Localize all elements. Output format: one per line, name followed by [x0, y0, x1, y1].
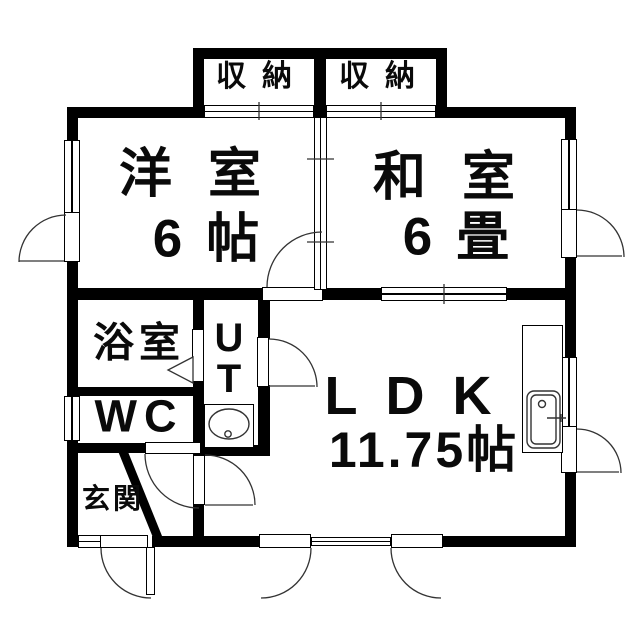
entrance-threshold	[100, 535, 148, 548]
door-ldk-right-arc	[577, 429, 621, 473]
door-bathroom-leaf	[192, 329, 204, 382]
door-japanese-right-leaf	[561, 209, 577, 258]
wall-ut-right-lower	[258, 385, 270, 456]
fusuma-partition	[314, 117, 327, 290]
ldk-double-door-right-leaf	[391, 534, 443, 548]
wall-right-middle	[565, 256, 576, 360]
entrance-label: 玄関	[82, 485, 144, 513]
door-ldk-right-leaf	[561, 426, 577, 473]
utility-label-line2: T	[217, 359, 241, 399]
wall-ut-right-upper	[258, 296, 270, 339]
ldk-double-door-left-arc	[261, 548, 311, 598]
floor-plan: 収納 収納 洋室 6帖 和室 6畳 浴室 U T WC 玄関 LDK 11.75…	[0, 0, 640, 640]
ldk-double-door-fixed	[311, 537, 391, 546]
wall-bath-ut-upper	[193, 296, 204, 332]
wall-closet-left	[193, 48, 204, 110]
closet-right-label: 収納	[339, 62, 431, 92]
door-entrance-arc	[101, 548, 151, 598]
wall-left-lower	[67, 438, 78, 547]
wall-bottom-c	[440, 536, 576, 547]
western-room-size: 6帖	[153, 213, 283, 266]
closet-left-label: 収納	[216, 62, 308, 92]
door-hall-ldk-leaf	[193, 455, 205, 505]
ldk-double-door-right-arc	[391, 548, 441, 598]
japanese-ldk-sliding-door	[381, 287, 507, 301]
utility-label-line1: U	[215, 318, 244, 358]
washbasin-unit	[204, 404, 254, 448]
wall-right-upper	[565, 107, 576, 142]
window-wc-left	[64, 396, 80, 441]
door-ut-arc	[269, 339, 317, 387]
wc-label: WC	[95, 394, 184, 439]
wall-left-middle	[67, 260, 78, 399]
japanese-room-name: 和室	[373, 151, 551, 204]
door-wc-leaf	[145, 442, 201, 454]
wall-bottom-b	[152, 536, 262, 547]
wall-top-left	[67, 107, 204, 118]
door-western-left-arc	[19, 215, 66, 262]
door-western-left-leaf	[64, 212, 80, 262]
wall-hall-ldk-lower	[193, 503, 204, 543]
closet-right-sliding-door	[326, 105, 436, 118]
door-wc-arc	[145, 454, 199, 508]
wall-closet-right	[436, 48, 447, 110]
window-ldk-right	[561, 357, 577, 428]
window-western-left	[64, 140, 80, 214]
entrance-sidelight	[78, 535, 102, 548]
window-japanese-right	[561, 139, 577, 211]
kitchen-counter	[522, 325, 563, 453]
ldk-size: 11.75帖	[329, 425, 519, 475]
door-ut-leaf	[257, 337, 269, 387]
door-japanese-right-arc	[577, 210, 624, 257]
wall-wc-bottom	[67, 443, 147, 453]
ldk-double-door-left-leaf	[259, 534, 311, 548]
bathroom-label: 浴室	[93, 323, 185, 364]
japanese-room-size: 6畳	[403, 211, 533, 264]
entrance-door-open-leaf	[146, 547, 155, 595]
wall-top-right	[436, 107, 576, 118]
ldk-name: LDK	[325, 369, 520, 423]
wall-left-upper	[67, 107, 78, 142]
western-room-name: 洋室	[119, 148, 297, 201]
door-hall-ldk-arc	[205, 455, 255, 505]
closet-left-sliding-door	[204, 105, 314, 118]
